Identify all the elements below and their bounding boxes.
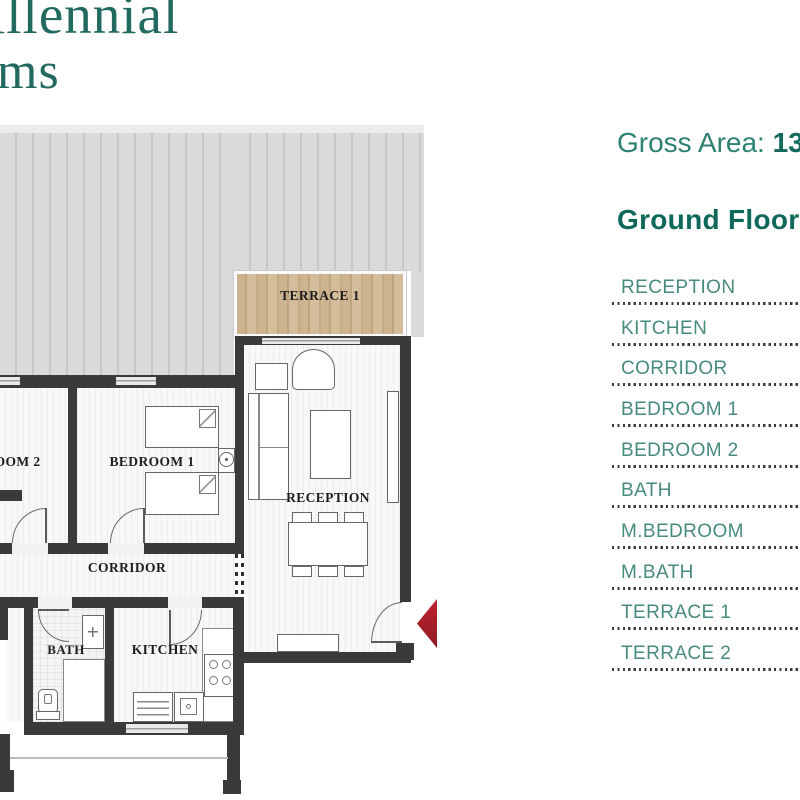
sofa bbox=[248, 393, 289, 500]
roof-area-side bbox=[411, 271, 424, 337]
dotted-divider bbox=[612, 465, 800, 468]
dotted-divider bbox=[612, 343, 800, 346]
drawer-lines bbox=[137, 696, 169, 718]
door-mat bbox=[277, 634, 339, 652]
bed-1 bbox=[145, 406, 219, 448]
left-wall-stub bbox=[0, 490, 22, 501]
legend-item: BEDROOM 1 bbox=[612, 395, 800, 436]
roof-area-left bbox=[0, 133, 234, 375]
legend-item-label: KITCHEN bbox=[621, 318, 707, 340]
gross-area-text: Gross Area: 13 bbox=[617, 127, 800, 159]
stove-burner bbox=[209, 676, 218, 685]
corridor-bottom-wall bbox=[0, 597, 244, 608]
reception-bottom-wall bbox=[235, 652, 411, 663]
coffee-table bbox=[310, 410, 351, 479]
stove-burner bbox=[222, 660, 231, 669]
legend-item-label: BATH bbox=[621, 480, 672, 502]
dotted-divider bbox=[612, 424, 800, 427]
dotted-divider bbox=[612, 627, 800, 630]
bath-door-leaf bbox=[38, 609, 69, 611]
bedroom2-door-leaf bbox=[45, 508, 47, 543]
dotted-divider bbox=[612, 546, 800, 549]
bedroom1-window bbox=[116, 377, 156, 385]
terrace2-left-wall-stub bbox=[0, 734, 10, 774]
terrace-1-label: TERRACE 1 bbox=[254, 288, 386, 304]
terrace2-left-pier bbox=[0, 770, 14, 792]
kitchen-sink bbox=[174, 692, 204, 722]
corridor-opening-dashed-line bbox=[235, 554, 238, 597]
legend-item: KITCHEN bbox=[612, 314, 800, 355]
armchair bbox=[292, 349, 335, 390]
bottom-window bbox=[126, 724, 188, 733]
legend-item: BATH bbox=[612, 476, 800, 517]
legend-item-label: TERRACE 2 bbox=[621, 643, 731, 665]
page: illennial ms TERRACE 1 BEDROOM 1 BEDROOM… bbox=[0, 0, 800, 800]
bath-left-wall bbox=[24, 608, 33, 722]
shower bbox=[63, 659, 105, 722]
bath-label: BATH bbox=[36, 642, 96, 658]
side-table bbox=[255, 363, 288, 390]
legend-item-label: CORRIDOR bbox=[621, 358, 728, 380]
door-opening bbox=[38, 597, 72, 608]
dotted-divider bbox=[612, 587, 800, 590]
kitchen-drawers bbox=[133, 692, 173, 722]
legend-item-label: BEDROOM 1 bbox=[621, 399, 739, 421]
side-room-floor-sliver bbox=[7, 608, 24, 722]
corridor-label: CORRIDOR bbox=[72, 560, 182, 576]
stove bbox=[204, 654, 235, 697]
stove-burner bbox=[222, 676, 231, 685]
dining-chair bbox=[344, 566, 364, 577]
dining-table bbox=[288, 522, 368, 566]
pillow bbox=[199, 475, 216, 494]
reception-right-wall bbox=[400, 336, 411, 602]
door-opening bbox=[12, 543, 48, 554]
reception-left-wall-upper bbox=[235, 336, 244, 554]
wall-clock bbox=[219, 452, 234, 467]
kitchen-right-wall bbox=[233, 608, 244, 722]
dotted-divider bbox=[612, 505, 800, 508]
dotted-divider bbox=[612, 383, 800, 386]
bed-2 bbox=[145, 472, 219, 515]
dotted-divider bbox=[612, 668, 800, 671]
legend-item: BEDROOM 2 bbox=[612, 436, 800, 477]
entrance-arrow-icon bbox=[417, 599, 437, 648]
left-edge-wall bbox=[0, 597, 8, 640]
logo-text-line1: illennial bbox=[0, 0, 179, 46]
sofa-cushion-line bbox=[258, 447, 288, 449]
bedroom-divider-wall bbox=[68, 388, 77, 543]
toilet-seat bbox=[44, 694, 52, 704]
legend-item-label: RECEPTION bbox=[621, 277, 735, 299]
room-legend: RECEPTION KITCHEN CORRIDOR BEDROOM 1 BED… bbox=[612, 273, 800, 680]
gross-area-label: Gross Area: bbox=[617, 127, 773, 158]
terrace2-right-pier bbox=[223, 780, 241, 794]
door-opening bbox=[108, 543, 144, 554]
legend-item: TERRACE 2 bbox=[612, 639, 800, 680]
legend-item-label: BEDROOM 2 bbox=[621, 440, 739, 462]
bedroom2-label: BEDROOM 2 bbox=[0, 454, 50, 470]
door-opening bbox=[168, 597, 202, 608]
legend-item: CORRIDOR bbox=[612, 354, 800, 395]
dining-chair bbox=[292, 566, 312, 577]
roof-area-right bbox=[234, 133, 424, 271]
bath-kitchen-wall bbox=[105, 608, 114, 722]
toilet-bowl bbox=[38, 689, 58, 712]
legend-item-label: M.BEDROOM bbox=[621, 521, 744, 543]
dotted-divider bbox=[612, 302, 800, 305]
terrace-1-deck bbox=[234, 271, 406, 337]
legend-item: RECEPTION bbox=[612, 273, 800, 314]
legend-item-label: M.BATH bbox=[621, 562, 694, 584]
reception-label: RECEPTION bbox=[252, 490, 404, 506]
legend-item-label: TERRACE 1 bbox=[621, 602, 731, 624]
reception-window bbox=[262, 338, 360, 344]
terrace2-edge-line bbox=[10, 757, 228, 759]
stove-burner bbox=[209, 660, 218, 669]
corridor-opening-dashed-line bbox=[241, 554, 244, 597]
kitchen-label: KITCHEN bbox=[126, 642, 204, 658]
toilet-base bbox=[36, 711, 60, 720]
gross-area-value: 13 bbox=[773, 127, 800, 158]
legend-item: TERRACE 1 bbox=[612, 598, 800, 639]
bedroom1-door-leaf bbox=[143, 508, 145, 543]
legend-item: M.BATH bbox=[612, 558, 800, 599]
pillow bbox=[199, 409, 216, 428]
bedroom1-label: BEDROOM 1 bbox=[100, 454, 204, 470]
legend-item: M.BEDROOM bbox=[612, 517, 800, 558]
logo-text-line2: ms bbox=[0, 42, 60, 101]
entrance-door-leaf bbox=[371, 641, 402, 643]
floor-title: Ground Floor bbox=[617, 204, 799, 236]
sink-drain bbox=[186, 704, 191, 709]
kitchen-door-leaf bbox=[169, 610, 171, 645]
tv-console bbox=[387, 391, 399, 503]
bedroom2-window bbox=[0, 377, 20, 385]
dining-chair bbox=[318, 566, 338, 577]
